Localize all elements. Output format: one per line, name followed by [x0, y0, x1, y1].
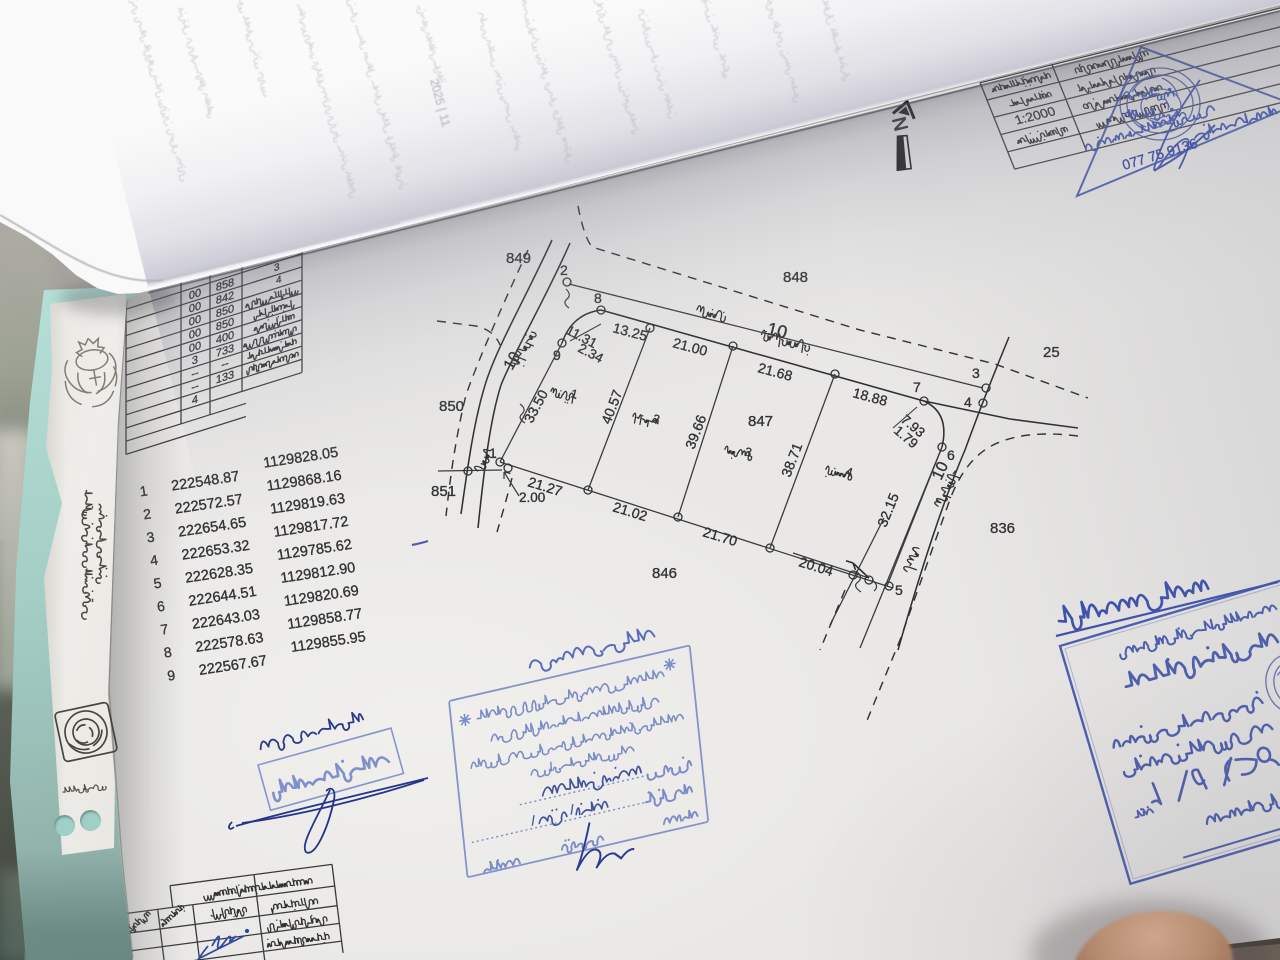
svg-text:/: /: [569, 802, 574, 818]
svg-text:2025 | 11: 2025 | 11: [427, 77, 453, 128]
svg-text:/: /: [531, 813, 536, 829]
